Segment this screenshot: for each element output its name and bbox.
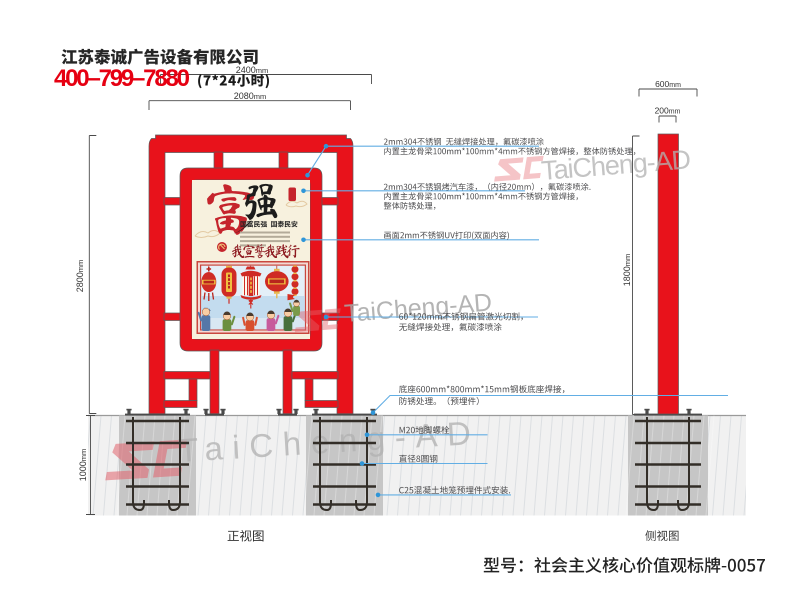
svg-text:400–799–7880: 400–799–7880 [54, 65, 190, 92]
svg-text:1800mm: 1800mm [622, 254, 632, 287]
svg-text:1000mm: 1000mm [78, 449, 88, 482]
svg-text:2800mm: 2800mm [75, 260, 85, 293]
svg-text:2400mm: 2400mm [236, 65, 269, 75]
svg-text:2080mm: 2080mm [234, 91, 267, 101]
